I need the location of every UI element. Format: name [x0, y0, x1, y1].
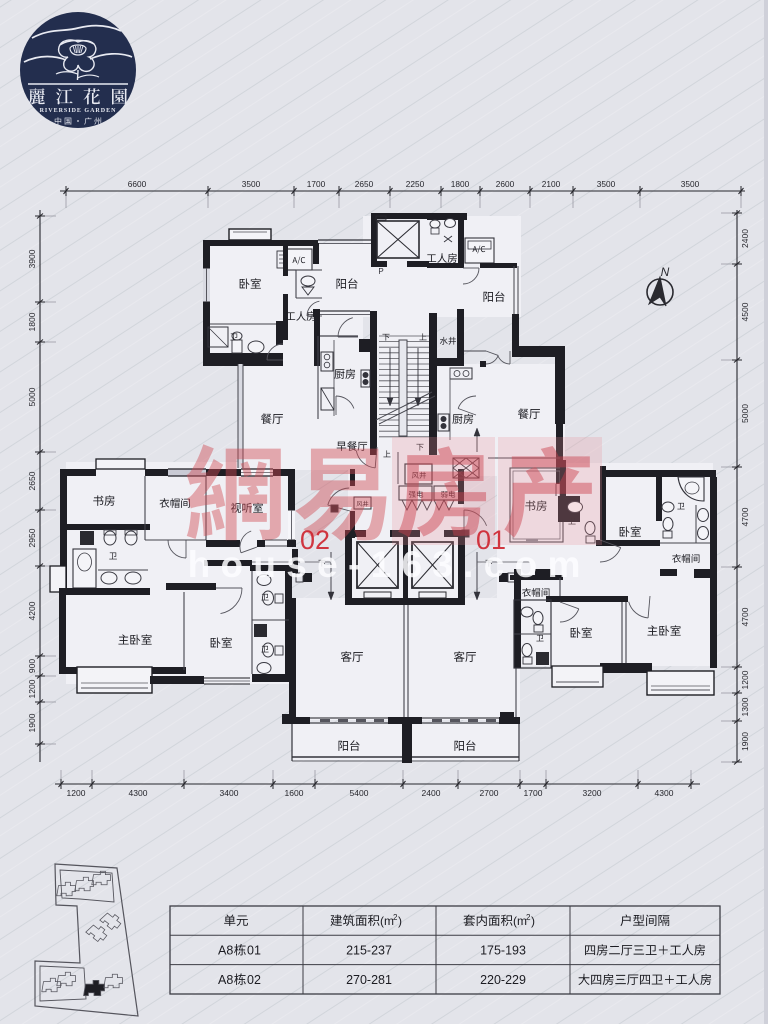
svg-text:2700: 2700 [480, 788, 499, 798]
svg-text:3500: 3500 [242, 179, 261, 189]
svg-text:220-229: 220-229 [480, 973, 526, 987]
svg-text:2600: 2600 [496, 179, 515, 189]
svg-text:1900: 1900 [27, 713, 37, 732]
svg-text:215-237: 215-237 [346, 944, 392, 958]
svg-text:1700: 1700 [524, 788, 543, 798]
svg-text:(m: (m [513, 914, 527, 928]
svg-text:1200: 1200 [67, 788, 86, 798]
svg-text:175-193: 175-193 [480, 944, 526, 958]
svg-text:3900: 3900 [27, 249, 37, 268]
svg-text:RIVERSIDE GARDEN: RIVERSIDE GARDEN [40, 108, 117, 114]
svg-text:4700: 4700 [740, 607, 750, 626]
svg-text:1200: 1200 [740, 670, 750, 689]
svg-text:5400: 5400 [350, 788, 369, 798]
svg-text:1600: 1600 [285, 788, 304, 798]
svg-text:3500: 3500 [681, 179, 700, 189]
svg-text:3400: 3400 [220, 788, 239, 798]
svg-text:4500: 4500 [740, 302, 750, 321]
svg-text:3200: 3200 [583, 788, 602, 798]
svg-text:5000: 5000 [740, 404, 750, 423]
svg-text:2400: 2400 [740, 229, 750, 248]
svg-text:1900: 1900 [740, 732, 750, 751]
svg-text:): ) [531, 914, 535, 928]
svg-text:2250: 2250 [406, 179, 425, 189]
svg-text:2650: 2650 [355, 179, 374, 189]
svg-text:A8: A8 [218, 973, 233, 987]
svg-text:N: N [661, 265, 670, 279]
svg-text:2400: 2400 [422, 788, 441, 798]
svg-text:1200: 1200 [27, 679, 37, 698]
svg-text:1800: 1800 [451, 179, 470, 189]
svg-text:4300: 4300 [655, 788, 674, 798]
svg-text:6600: 6600 [128, 179, 147, 189]
svg-text:900: 900 [27, 659, 37, 673]
svg-text:4300: 4300 [129, 788, 148, 798]
svg-text:): ) [398, 914, 402, 928]
svg-text:1300: 1300 [740, 697, 750, 716]
svg-text:5000: 5000 [27, 387, 37, 406]
svg-text:4200: 4200 [27, 601, 37, 620]
svg-text:(m: (m [380, 914, 394, 928]
svg-text:h o u s e - 1 6 3 . c o m: h o u s e - 1 6 3 . c o m [188, 544, 581, 585]
svg-text:270-281: 270-281 [346, 973, 392, 987]
svg-text:2100: 2100 [542, 179, 561, 189]
svg-text:1800: 1800 [27, 312, 37, 331]
svg-text:3500: 3500 [597, 179, 616, 189]
svg-text:01: 01 [247, 944, 261, 958]
svg-text:02: 02 [247, 973, 261, 987]
svg-text:1700: 1700 [307, 179, 326, 189]
svg-text:2650: 2650 [27, 471, 37, 490]
svg-text:A8: A8 [218, 944, 233, 958]
svg-text:4700: 4700 [740, 507, 750, 526]
svg-text:2950: 2950 [27, 528, 37, 547]
svg-text:P: P [378, 267, 383, 276]
